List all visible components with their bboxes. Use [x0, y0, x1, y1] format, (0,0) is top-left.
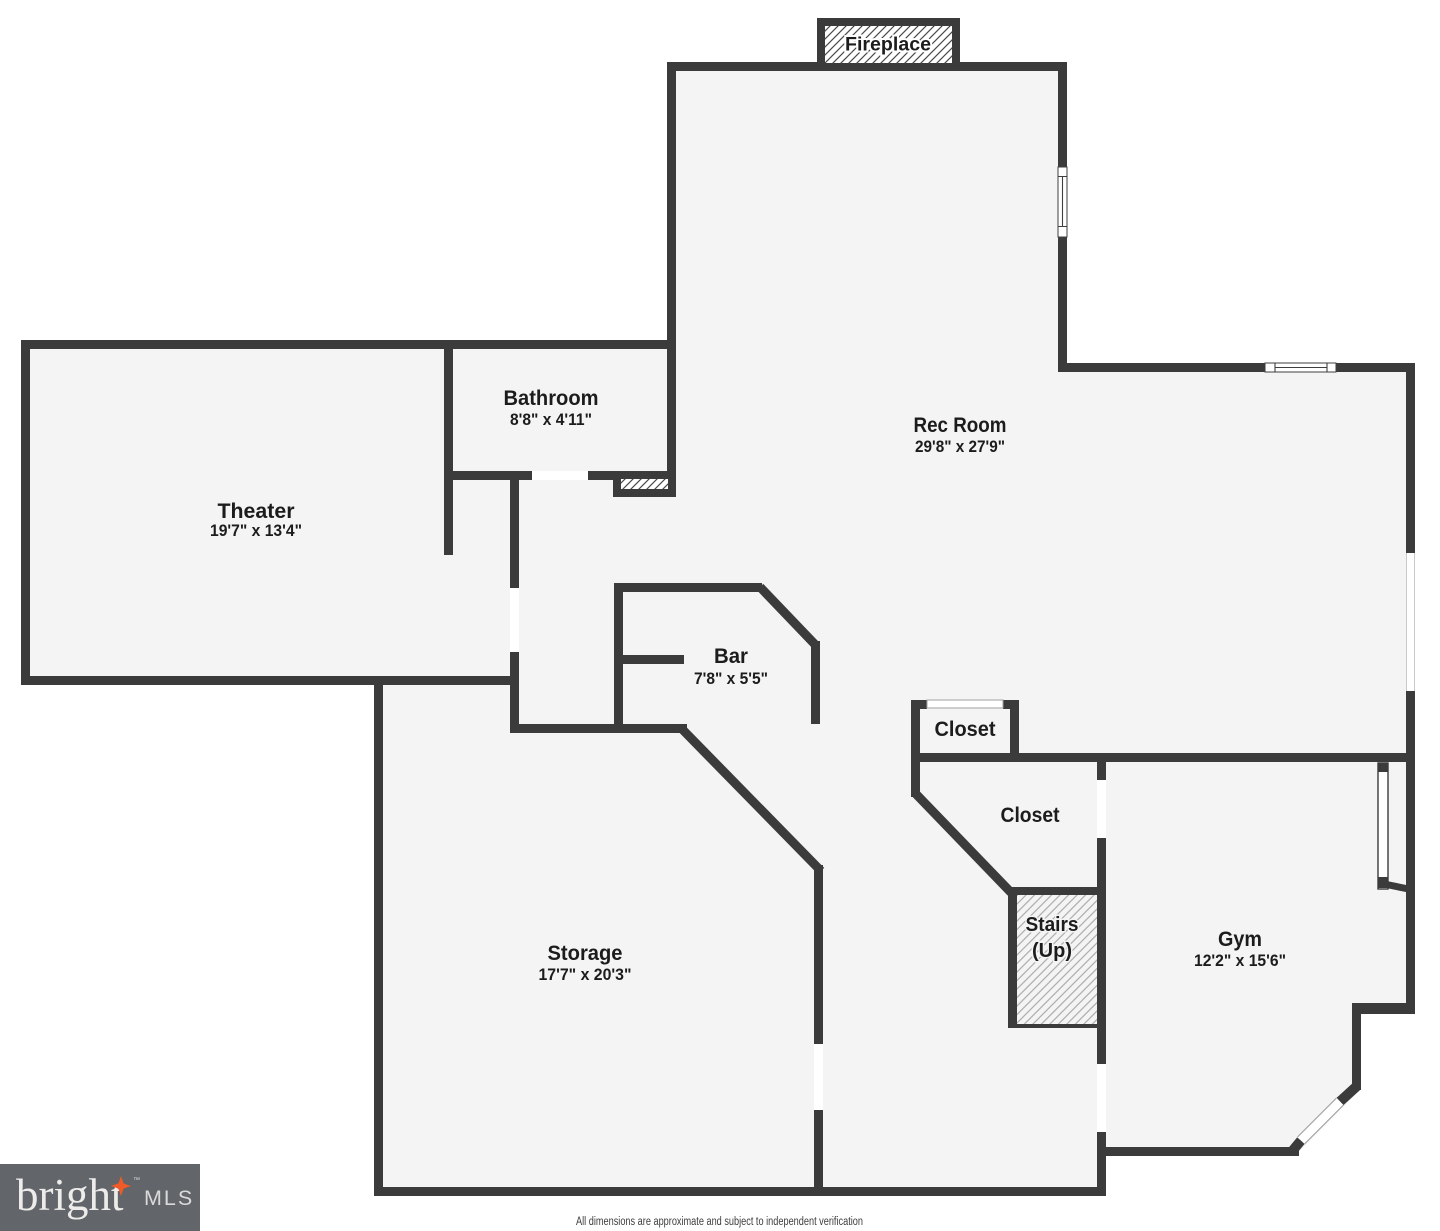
svg-text:Closet: Closet	[935, 718, 996, 741]
svg-text:MLS: MLS	[144, 1186, 194, 1210]
svg-text:12'2" x 15'6": 12'2" x 15'6"	[1194, 951, 1286, 970]
svg-text:Bathroom: Bathroom	[504, 387, 599, 410]
svg-text:Bar: Bar	[714, 645, 748, 668]
svg-text:Storage: Storage	[548, 942, 623, 965]
svg-text:All dimensions are approximate: All dimensions are approximate and subje…	[576, 1216, 863, 1228]
svg-text:19'7" x 13'4": 19'7" x 13'4"	[210, 521, 302, 540]
svg-text:Fireplace: Fireplace	[845, 34, 931, 56]
svg-text:29'8" x 27'9": 29'8" x 27'9"	[915, 437, 1005, 456]
svg-text:Theater: Theater	[218, 500, 295, 523]
svg-text:Gym: Gym	[1218, 928, 1262, 951]
svg-text:bright: bright	[16, 1170, 124, 1220]
svg-text:Rec Room: Rec Room	[914, 414, 1007, 437]
svg-text:7'8" x 5'5": 7'8" x 5'5"	[694, 669, 768, 688]
svg-text:Stairs: Stairs	[1026, 914, 1079, 936]
svg-text:17'7" x 20'3": 17'7" x 20'3"	[539, 965, 632, 984]
svg-text:Closet: Closet	[1001, 804, 1060, 827]
svg-text:™: ™	[133, 1177, 140, 1184]
svg-text:(Up): (Up)	[1032, 940, 1072, 962]
svg-text:8'8" x 4'11": 8'8" x 4'11"	[510, 410, 592, 429]
